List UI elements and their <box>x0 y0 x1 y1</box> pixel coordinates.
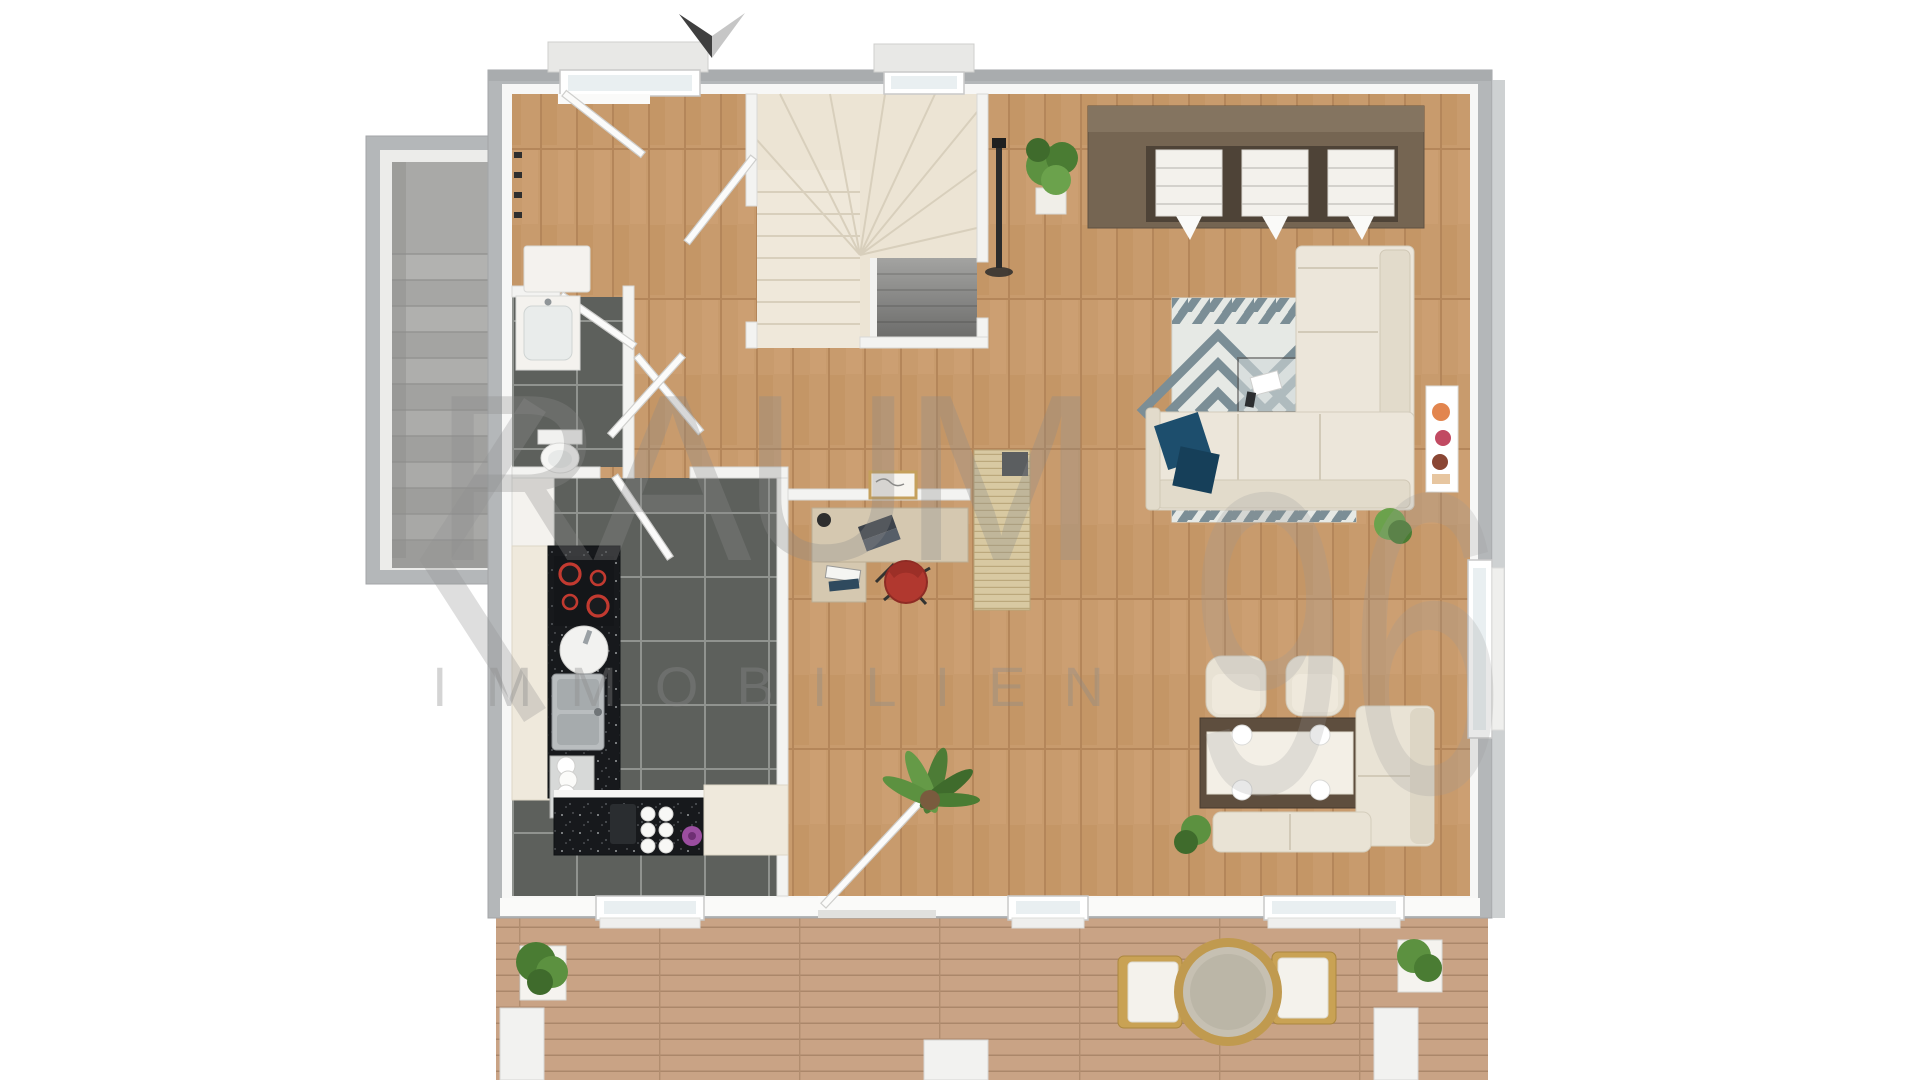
sofa-armrest <box>1146 408 1160 510</box>
terrace-door-threshold <box>818 910 936 918</box>
deck-post-left <box>500 1008 544 1080</box>
entrance-canopy <box>548 42 708 72</box>
deck-step <box>924 1040 988 1080</box>
counter-basin <box>610 804 636 844</box>
floorplan-render: RAUM 96 IMMOBILIEN <box>0 0 1920 1080</box>
deck-post-right <box>1374 1008 1418 1080</box>
watermark-number: 96 <box>1188 404 1506 884</box>
window-glass <box>891 76 957 89</box>
wall-entrance-stair <box>746 94 757 206</box>
plant-icon <box>527 969 553 995</box>
floorplan-canvas: RAUM 96 IMMOBILIEN <box>0 0 1920 1080</box>
stair-stringer <box>870 258 877 348</box>
wall-entrance-stair-stub <box>746 322 757 348</box>
terrace-planter-right <box>1397 939 1442 992</box>
window-glass <box>568 75 692 91</box>
rattan-chair-left <box>1118 956 1182 1028</box>
window-glass <box>1272 901 1396 914</box>
terrace-planter-left <box>516 942 568 1000</box>
purple-flower-icon <box>682 826 702 846</box>
living-window-sill <box>1012 918 1084 928</box>
stair-canopy <box>874 44 974 72</box>
watermark-brand: RAUM <box>432 346 1100 611</box>
terrace-deck <box>496 904 1488 1080</box>
annex-landing <box>392 162 488 254</box>
wardrobe-unit <box>1088 106 1424 240</box>
terrace-round-table <box>1174 938 1282 1046</box>
dining-window-sill <box>1268 918 1400 928</box>
plant-icon <box>1414 954 1442 982</box>
kitchen-window-sill <box>600 918 700 928</box>
basement-stairs-down <box>877 258 977 348</box>
terrace <box>496 904 1488 1080</box>
window-glass <box>604 901 696 914</box>
annex-shadow <box>392 162 406 558</box>
wall-stair-living <box>977 94 988 262</box>
wardrobe-shelves <box>1156 150 1394 240</box>
kitchen-cabinet-end <box>704 785 788 855</box>
counter-edge <box>554 790 704 798</box>
sideboard <box>524 246 590 292</box>
window-glass <box>1016 901 1080 914</box>
